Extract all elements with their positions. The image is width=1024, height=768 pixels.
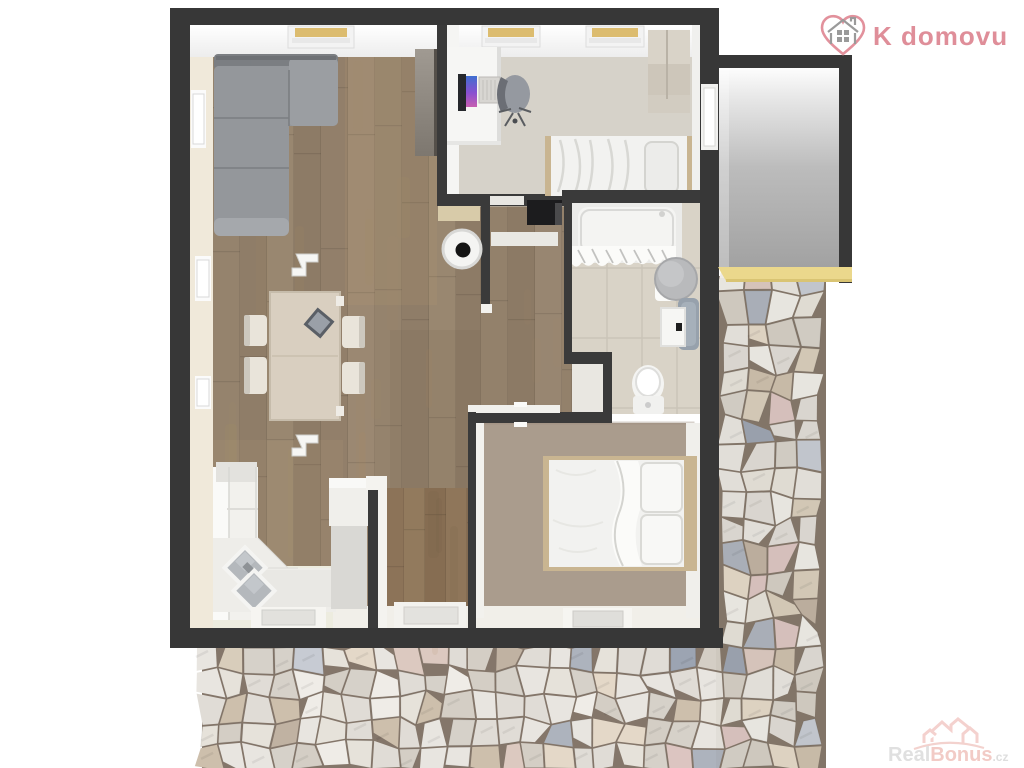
svg-text:K domovu: K domovu: [873, 21, 1008, 51]
svg-text:RealBonus.cz: RealBonus.cz: [888, 744, 1008, 766]
